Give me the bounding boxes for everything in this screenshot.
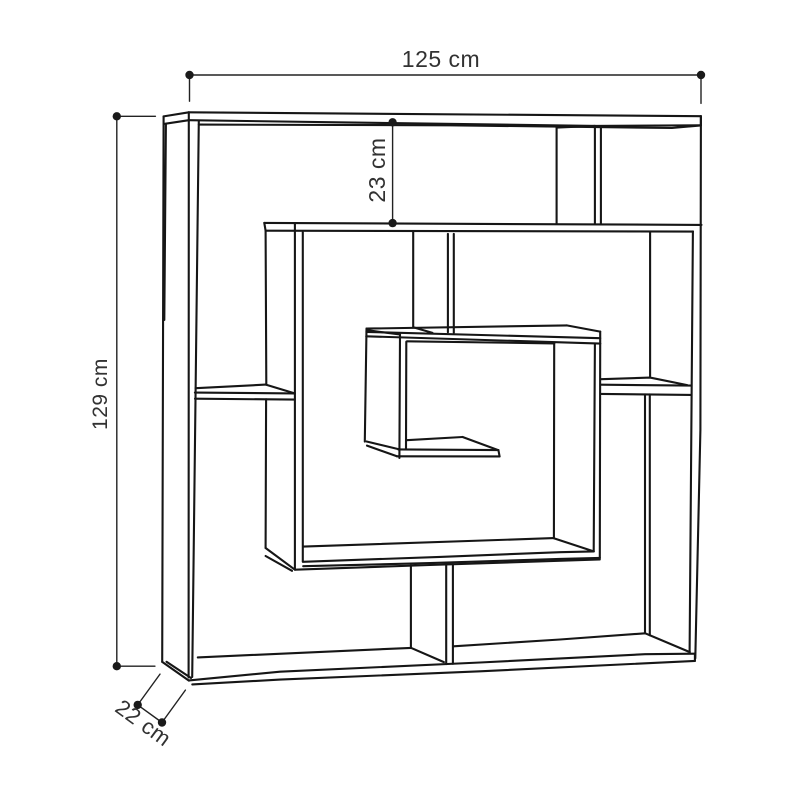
svg-text:23 cm: 23 cm	[364, 137, 390, 202]
svg-text:22 cm: 22 cm	[111, 694, 176, 751]
svg-text:125 cm: 125 cm	[402, 46, 480, 72]
svg-text:129 cm: 129 cm	[89, 358, 112, 430]
